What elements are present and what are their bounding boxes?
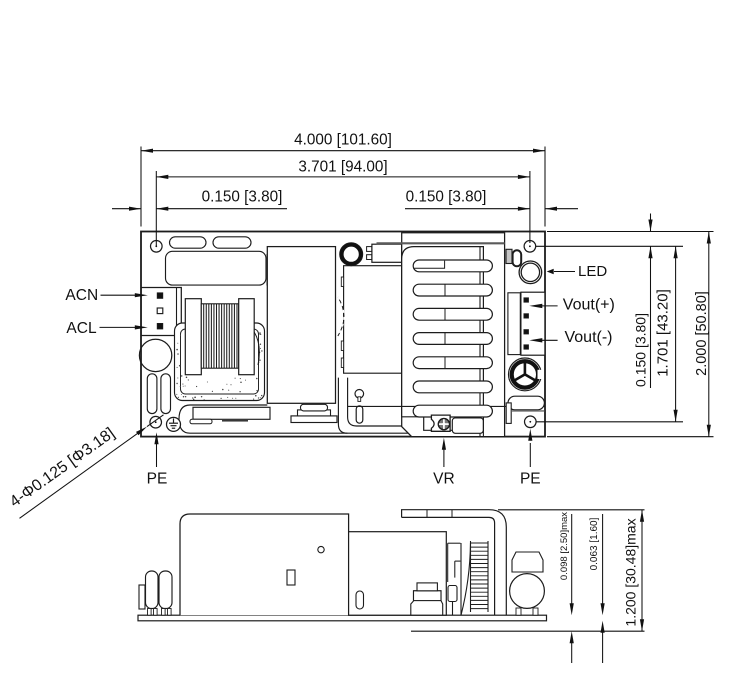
svg-text:2.000 [50.80]: 2.000 [50.80] [694, 291, 710, 376]
svg-text:PE: PE [520, 471, 541, 488]
svg-text:ACN: ACN [65, 287, 98, 304]
svg-text:1.200 [30.48]max: 1.200 [30.48]max [623, 518, 639, 626]
svg-text:0.063 [1.60]: 0.063 [1.60] [589, 517, 600, 570]
svg-text:VR: VR [433, 471, 455, 488]
svg-text:4.000 [101.60]: 4.000 [101.60] [294, 131, 392, 148]
svg-text:1.701 [43.20]: 1.701 [43.20] [655, 289, 672, 377]
svg-text:3.701 [94.00]: 3.701 [94.00] [298, 159, 387, 176]
svg-text:0.098 [2.50]max: 0.098 [2.50]max [559, 512, 570, 580]
svg-text:LED: LED [578, 263, 607, 280]
svg-text:0.150 [3.80]: 0.150 [3.80] [633, 313, 649, 387]
svg-text:Vout(-): Vout(-) [564, 329, 612, 346]
svg-text:Vout(+): Vout(+) [563, 296, 615, 313]
svg-text:PE: PE [147, 471, 168, 488]
svg-text:0.150 [3.80]: 0.150 [3.80] [406, 188, 487, 205]
svg-text:ACL: ACL [66, 320, 97, 337]
svg-text:0.150 [3.80]: 0.150 [3.80] [202, 188, 283, 205]
